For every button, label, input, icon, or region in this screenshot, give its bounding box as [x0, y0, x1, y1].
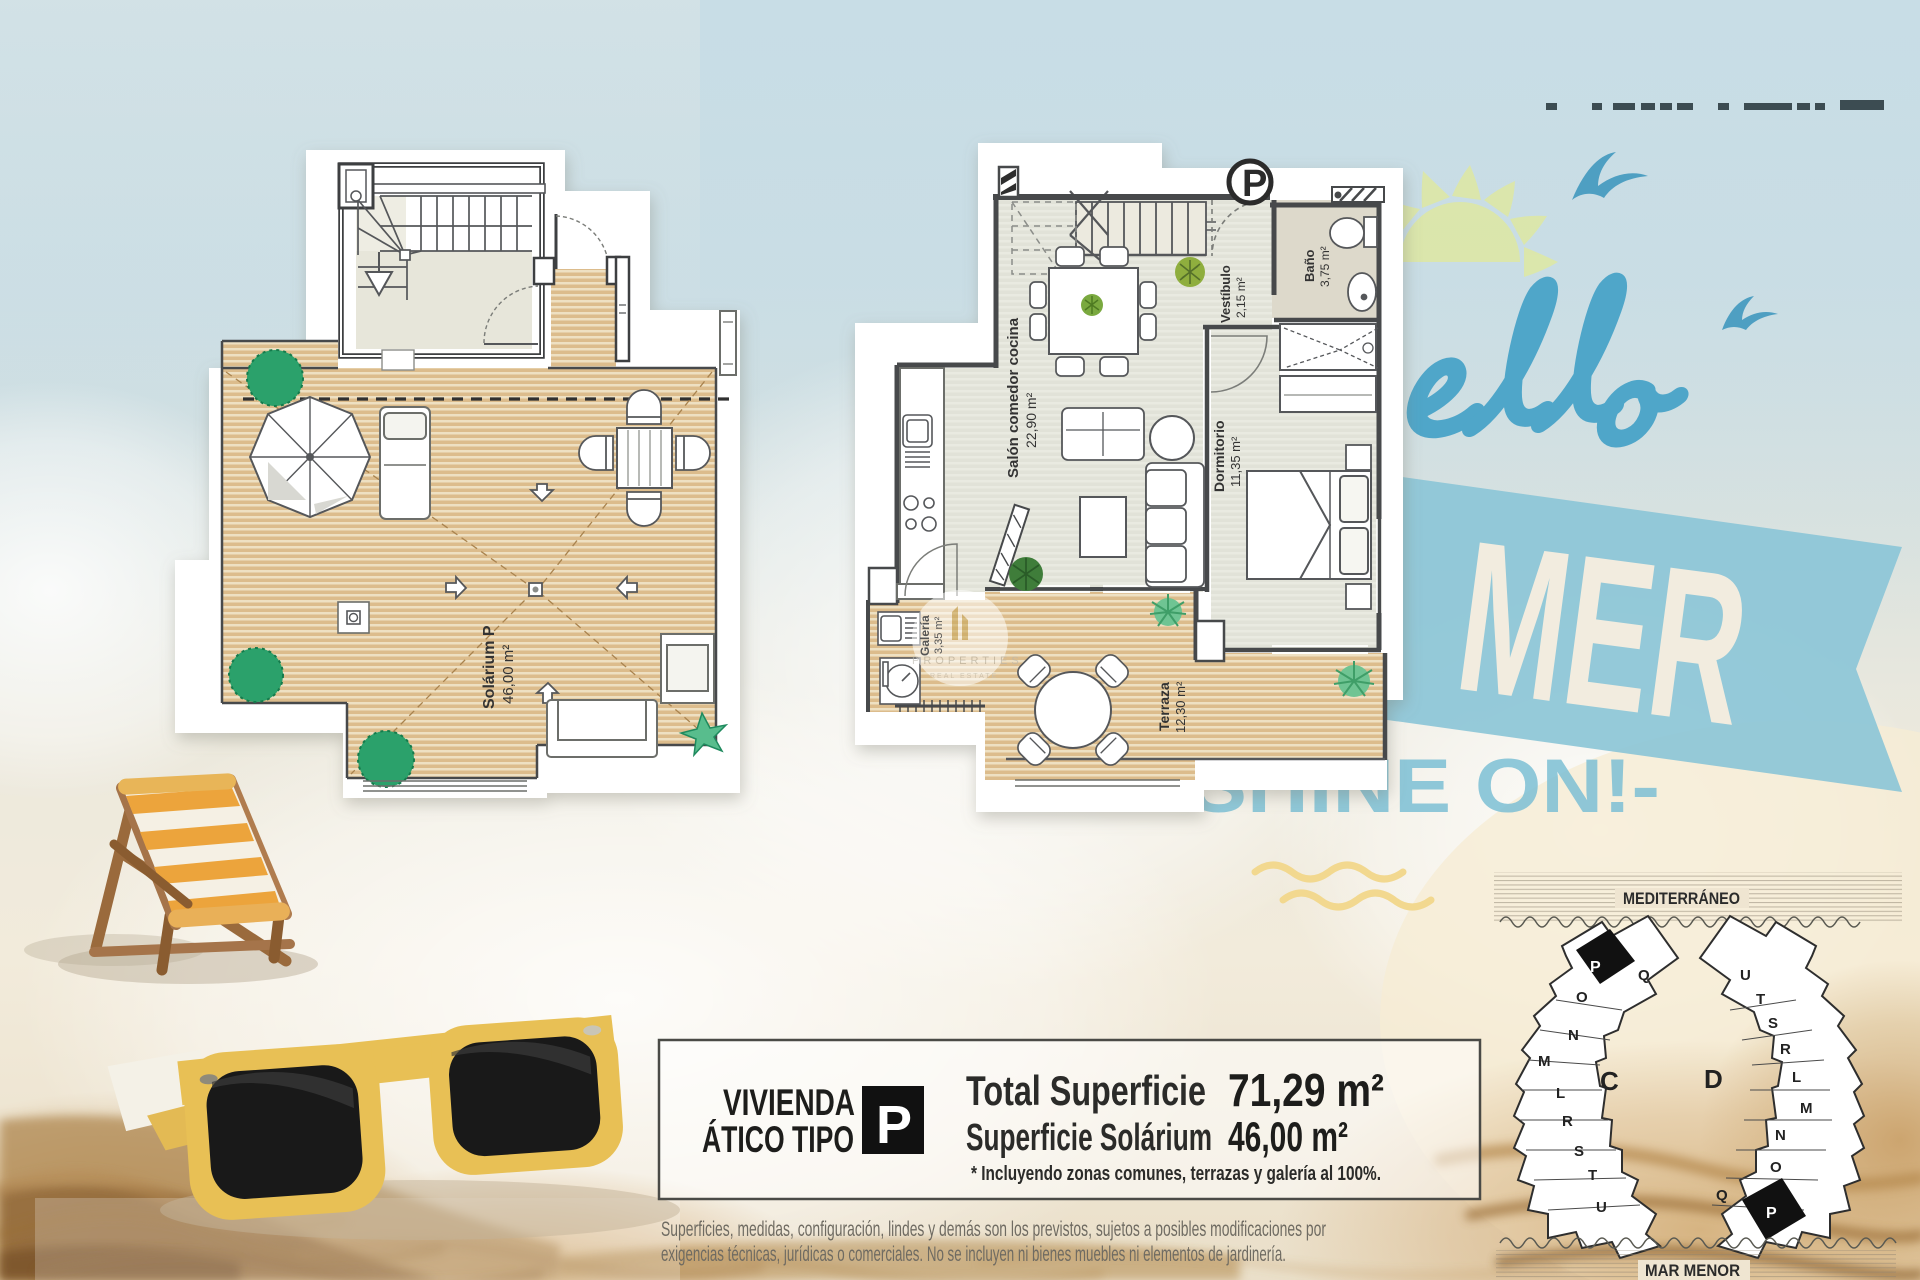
svg-text:MAR MENOR: MAR MENOR [1645, 1261, 1740, 1280]
svg-text:N: N [1568, 1027, 1579, 1044]
svg-text:Q: Q [1638, 967, 1650, 984]
svg-text:R: R [1780, 1041, 1791, 1058]
svg-text:Terraza: Terraza [1156, 682, 1172, 731]
svg-text:12,30 m²: 12,30 m² [1173, 681, 1188, 733]
svg-text:Q: Q [1716, 1187, 1728, 1204]
svg-text:MER: MER [1446, 495, 1760, 771]
svg-text:46,00 m²: 46,00 m² [500, 645, 517, 704]
svg-text:N: N [1775, 1127, 1786, 1144]
svg-text:VIVIENDA: VIVIENDA [723, 1082, 855, 1123]
svg-text:ÁTICO TIPO: ÁTICO TIPO [702, 1119, 854, 1160]
svg-text:71,29 m²: 71,29 m² [1228, 1064, 1384, 1116]
svg-text:Dormitorio: Dormitorio [1211, 420, 1227, 492]
svg-text:11,35 m²: 11,35 m² [1228, 436, 1243, 487]
svg-text:P: P [1590, 959, 1601, 976]
svg-text:REAL ESTATE: REAL ESTATE [930, 673, 998, 680]
svg-text:Solárium P: Solárium P [481, 625, 498, 709]
svg-text:O: O [1576, 989, 1588, 1006]
svg-text:22,90 m²: 22,90 m² [1023, 392, 1039, 448]
svg-text:R: R [1562, 1113, 1573, 1130]
svg-text:2,15 m²: 2,15 m² [1234, 277, 1248, 318]
svg-text:O: O [1770, 1159, 1782, 1176]
svg-text:D: D [1704, 1064, 1723, 1094]
svg-text:* Incluyendo zonas comunes, te: * Incluyendo zonas comunes, terrazas y g… [971, 1163, 1381, 1185]
svg-text:P: P [876, 1095, 912, 1155]
svg-text:S: S [1574, 1143, 1584, 1160]
svg-text:Superficie Solárium: Superficie Solárium [966, 1117, 1212, 1159]
svg-text:U: U [1740, 967, 1751, 984]
svg-text:P: P [1242, 163, 1267, 205]
svg-text:U: U [1596, 1199, 1607, 1216]
svg-text:46,00 m²: 46,00 m² [1228, 1113, 1348, 1160]
svg-text:P: P [1766, 1205, 1777, 1222]
svg-text:M: M [1800, 1100, 1813, 1117]
svg-text:Galería: Galería [918, 615, 932, 656]
svg-text:T: T [1588, 1167, 1597, 1184]
svg-text:Superficies, medidas, configur: Superficies, medidas, configuración, lin… [661, 1218, 1326, 1241]
svg-text:T: T [1756, 991, 1765, 1008]
svg-text:3,75 m²: 3,75 m² [1318, 246, 1332, 287]
svg-text:Baño: Baño [1302, 249, 1317, 282]
svg-text:L: L [1792, 1069, 1801, 1086]
svg-text:exigencias técnicas, jurídicas: exigencias técnicas, jurídicas o comerci… [661, 1243, 1286, 1266]
svg-text:M: M [1538, 1053, 1551, 1070]
svg-text:MEDITERRÁNEO: MEDITERRÁNEO [1623, 889, 1740, 908]
svg-text:Vestíbulo: Vestíbulo [1218, 265, 1233, 323]
svg-text:Total Superficie: Total Superficie [966, 1067, 1206, 1114]
svg-text:3,35 m²: 3,35 m² [933, 616, 945, 654]
svg-text:L: L [1556, 1085, 1565, 1102]
svg-text:S: S [1768, 1015, 1778, 1032]
svg-text:Salón comedor cocina: Salón comedor cocina [1005, 317, 1022, 478]
svg-text:C: C [1600, 1066, 1619, 1096]
